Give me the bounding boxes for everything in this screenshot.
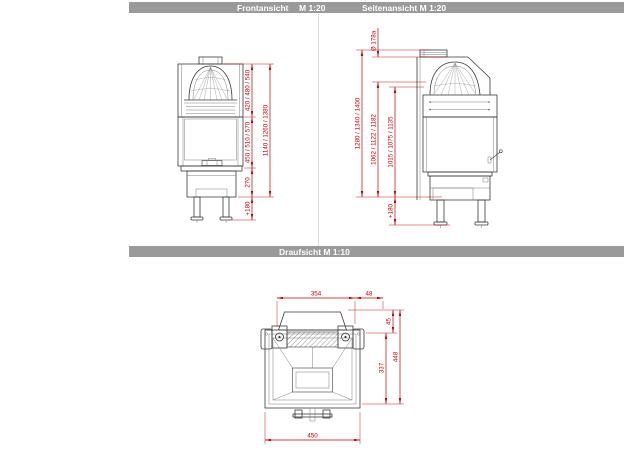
top-view-title: Draufsicht M 1:10 — [279, 247, 350, 257]
header-bar-top-view: Draufsicht M 1:10 — [129, 246, 624, 257]
dim-label-body-depth: 337 — [379, 362, 386, 373]
front-view-scale: M 1:20 — [299, 3, 325, 13]
front-view-unit — [178, 57, 243, 223]
side-view-title: Seitenansicht M 1:20 — [362, 3, 446, 13]
top-view-drawing: 354 48 45 337 448 450 — [240, 258, 440, 460]
side-view-drawing: Ø 178a 1280 / 1340 / 1400 1062 / 1122 / … — [350, 20, 530, 240]
technical-drawing-page: Frontansicht M 1:20 Seitenansicht M 1:20 — [0, 0, 624, 460]
dim-label-front-width: 450 — [307, 433, 318, 440]
header-bar-front-side: Frontansicht M 1:20 Seitenansicht M 1:20 — [129, 2, 624, 13]
dim-label-base-section: 270 — [244, 177, 251, 188]
front-view-title: Frontansicht — [237, 3, 288, 13]
dim-label-collar-depth: 45 — [386, 318, 393, 325]
top-view-dimensions: 354 48 45 337 448 450 — [265, 291, 404, 445]
dim-label-height-inner: 1015 / 1075 / 1135 — [387, 116, 394, 168]
side-view-dimensions: Ø 178a 1280 / 1340 / 1400 1062 / 1122 / … — [354, 28, 450, 225]
dim-label-overall-height-side: 1280 / 1340 / 1400 — [354, 97, 361, 149]
top-view-unit — [261, 312, 364, 421]
dim-label-flue-diameter: Ø 178a — [370, 30, 377, 51]
dim-label-height-mid: 1062 / 1122 / 1182 — [370, 114, 377, 165]
front-handle — [293, 408, 332, 421]
side-view-unit — [417, 50, 502, 228]
dim-label-side-offset: 48 — [366, 291, 373, 298]
dim-label-back-width: 354 — [311, 291, 322, 298]
dim-label-door-section: 450 / 510 / 570 — [244, 121, 251, 163]
dim-label-top-section: 420 / 480 / 540 — [244, 69, 251, 111]
dim-label-total-depth: 448 — [393, 351, 400, 362]
front-view-drawing: 420 / 480 / 540 450 / 510 / 570 270 +180… — [160, 20, 330, 246]
dim-label-front-legs: +180 — [244, 201, 251, 215]
dim-label-overall-height-front: 1140 / 1260 / 1380 — [262, 104, 269, 156]
dim-label-side-legs: +180 — [387, 203, 394, 217]
